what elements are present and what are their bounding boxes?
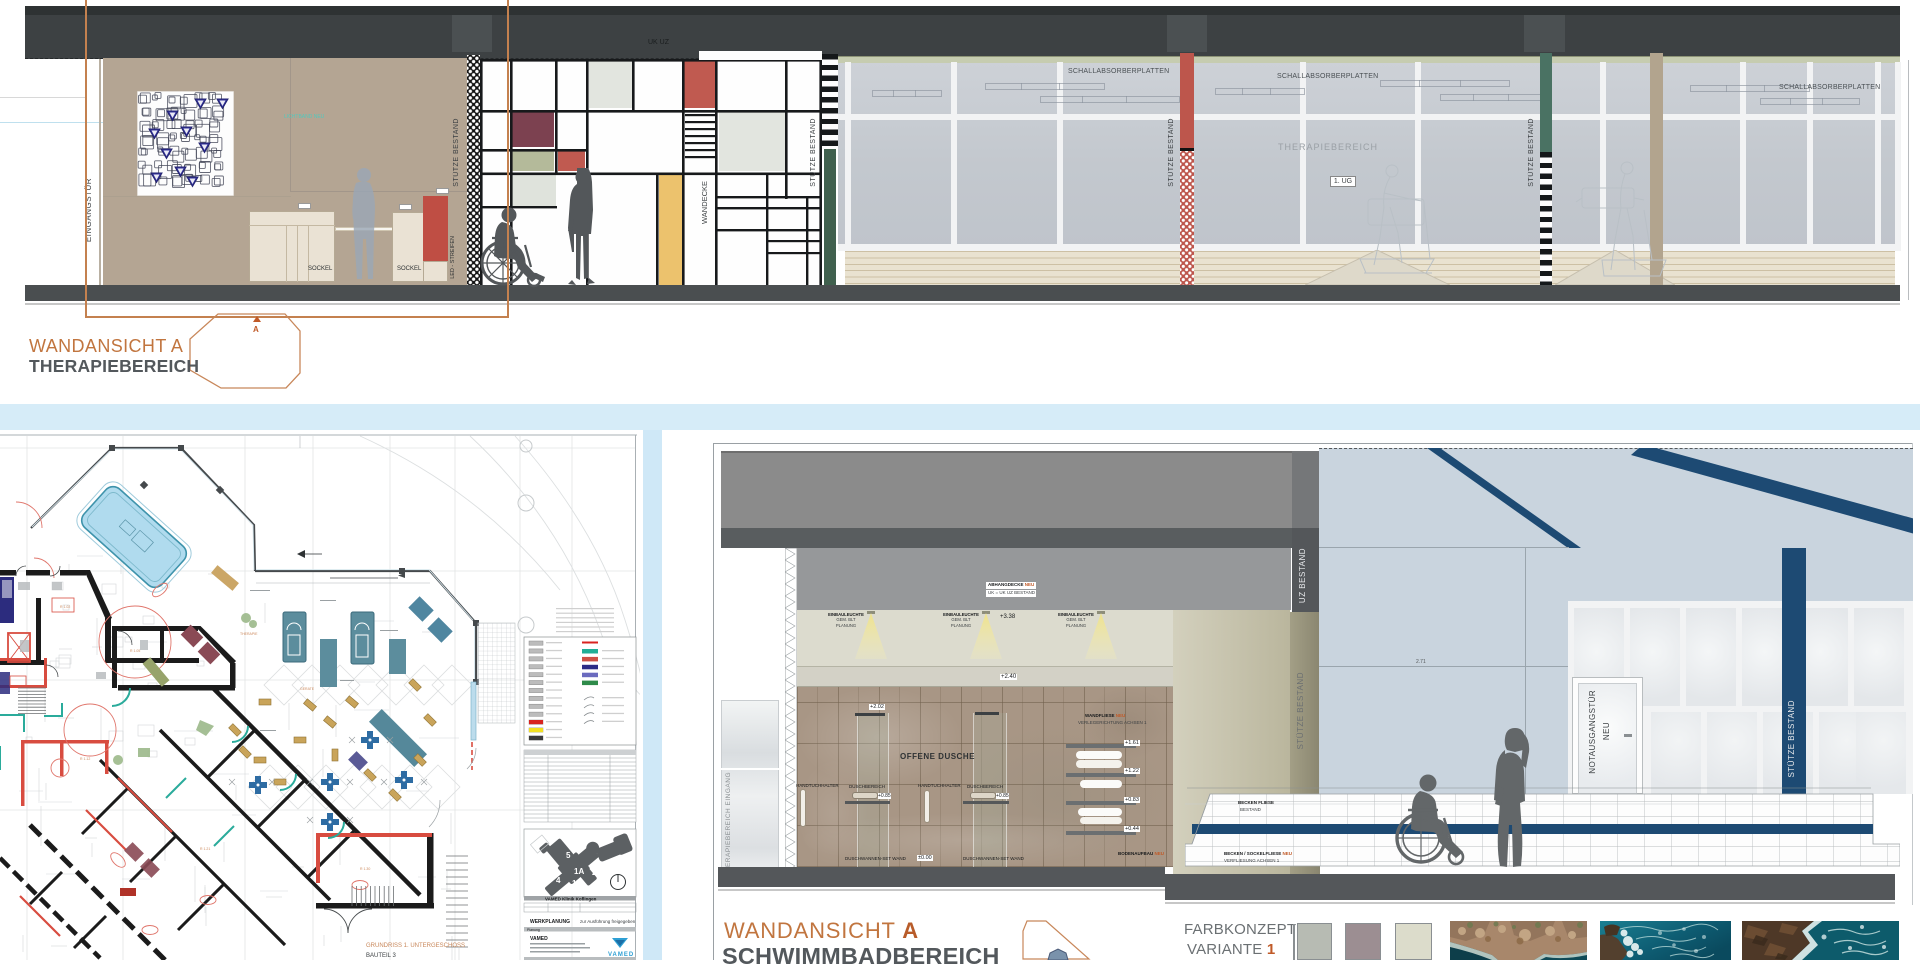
svg-text:2: 2 (592, 868, 597, 877)
svg-text:1B: 1B (572, 879, 582, 888)
svg-text:GERATE: GERATE (300, 687, 315, 691)
svg-text:WANDECKE: WANDECKE (700, 181, 709, 224)
svg-text:1A: 1A (574, 867, 584, 876)
svg-text:THERAPIE: THERAPIE (240, 632, 258, 636)
svg-text:R 1.30: R 1.30 (360, 867, 370, 871)
svg-text:R 1.02: R 1.02 (60, 605, 70, 609)
svg-text:zur Ausführung freigegeben: zur Ausführung freigegeben (580, 919, 636, 924)
svg-text:A: A (253, 325, 259, 334)
svg-text:5: 5 (566, 851, 571, 860)
svg-text:R 1.21: R 1.21 (200, 847, 210, 851)
svg-text:VAMED: VAMED (530, 936, 548, 942)
svg-text:Planung: Planung (527, 928, 540, 932)
svg-text:GRUNDRISS 1. UNTERGESCHOSS: GRUNDRISS 1. UNTERGESCHOSS (366, 943, 465, 949)
svg-text:BAUTEIL 3: BAUTEIL 3 (366, 953, 396, 959)
svg-text:4: 4 (556, 876, 561, 885)
svg-text:R 1.12: R 1.12 (80, 757, 90, 761)
svg-text:R 1.05: R 1.05 (130, 649, 140, 653)
svg-text:VAMED Klinik Koflingen: VAMED Klinik Koflingen (545, 897, 597, 902)
svg-text:WERKPLANUNG: WERKPLANUNG (530, 919, 570, 925)
